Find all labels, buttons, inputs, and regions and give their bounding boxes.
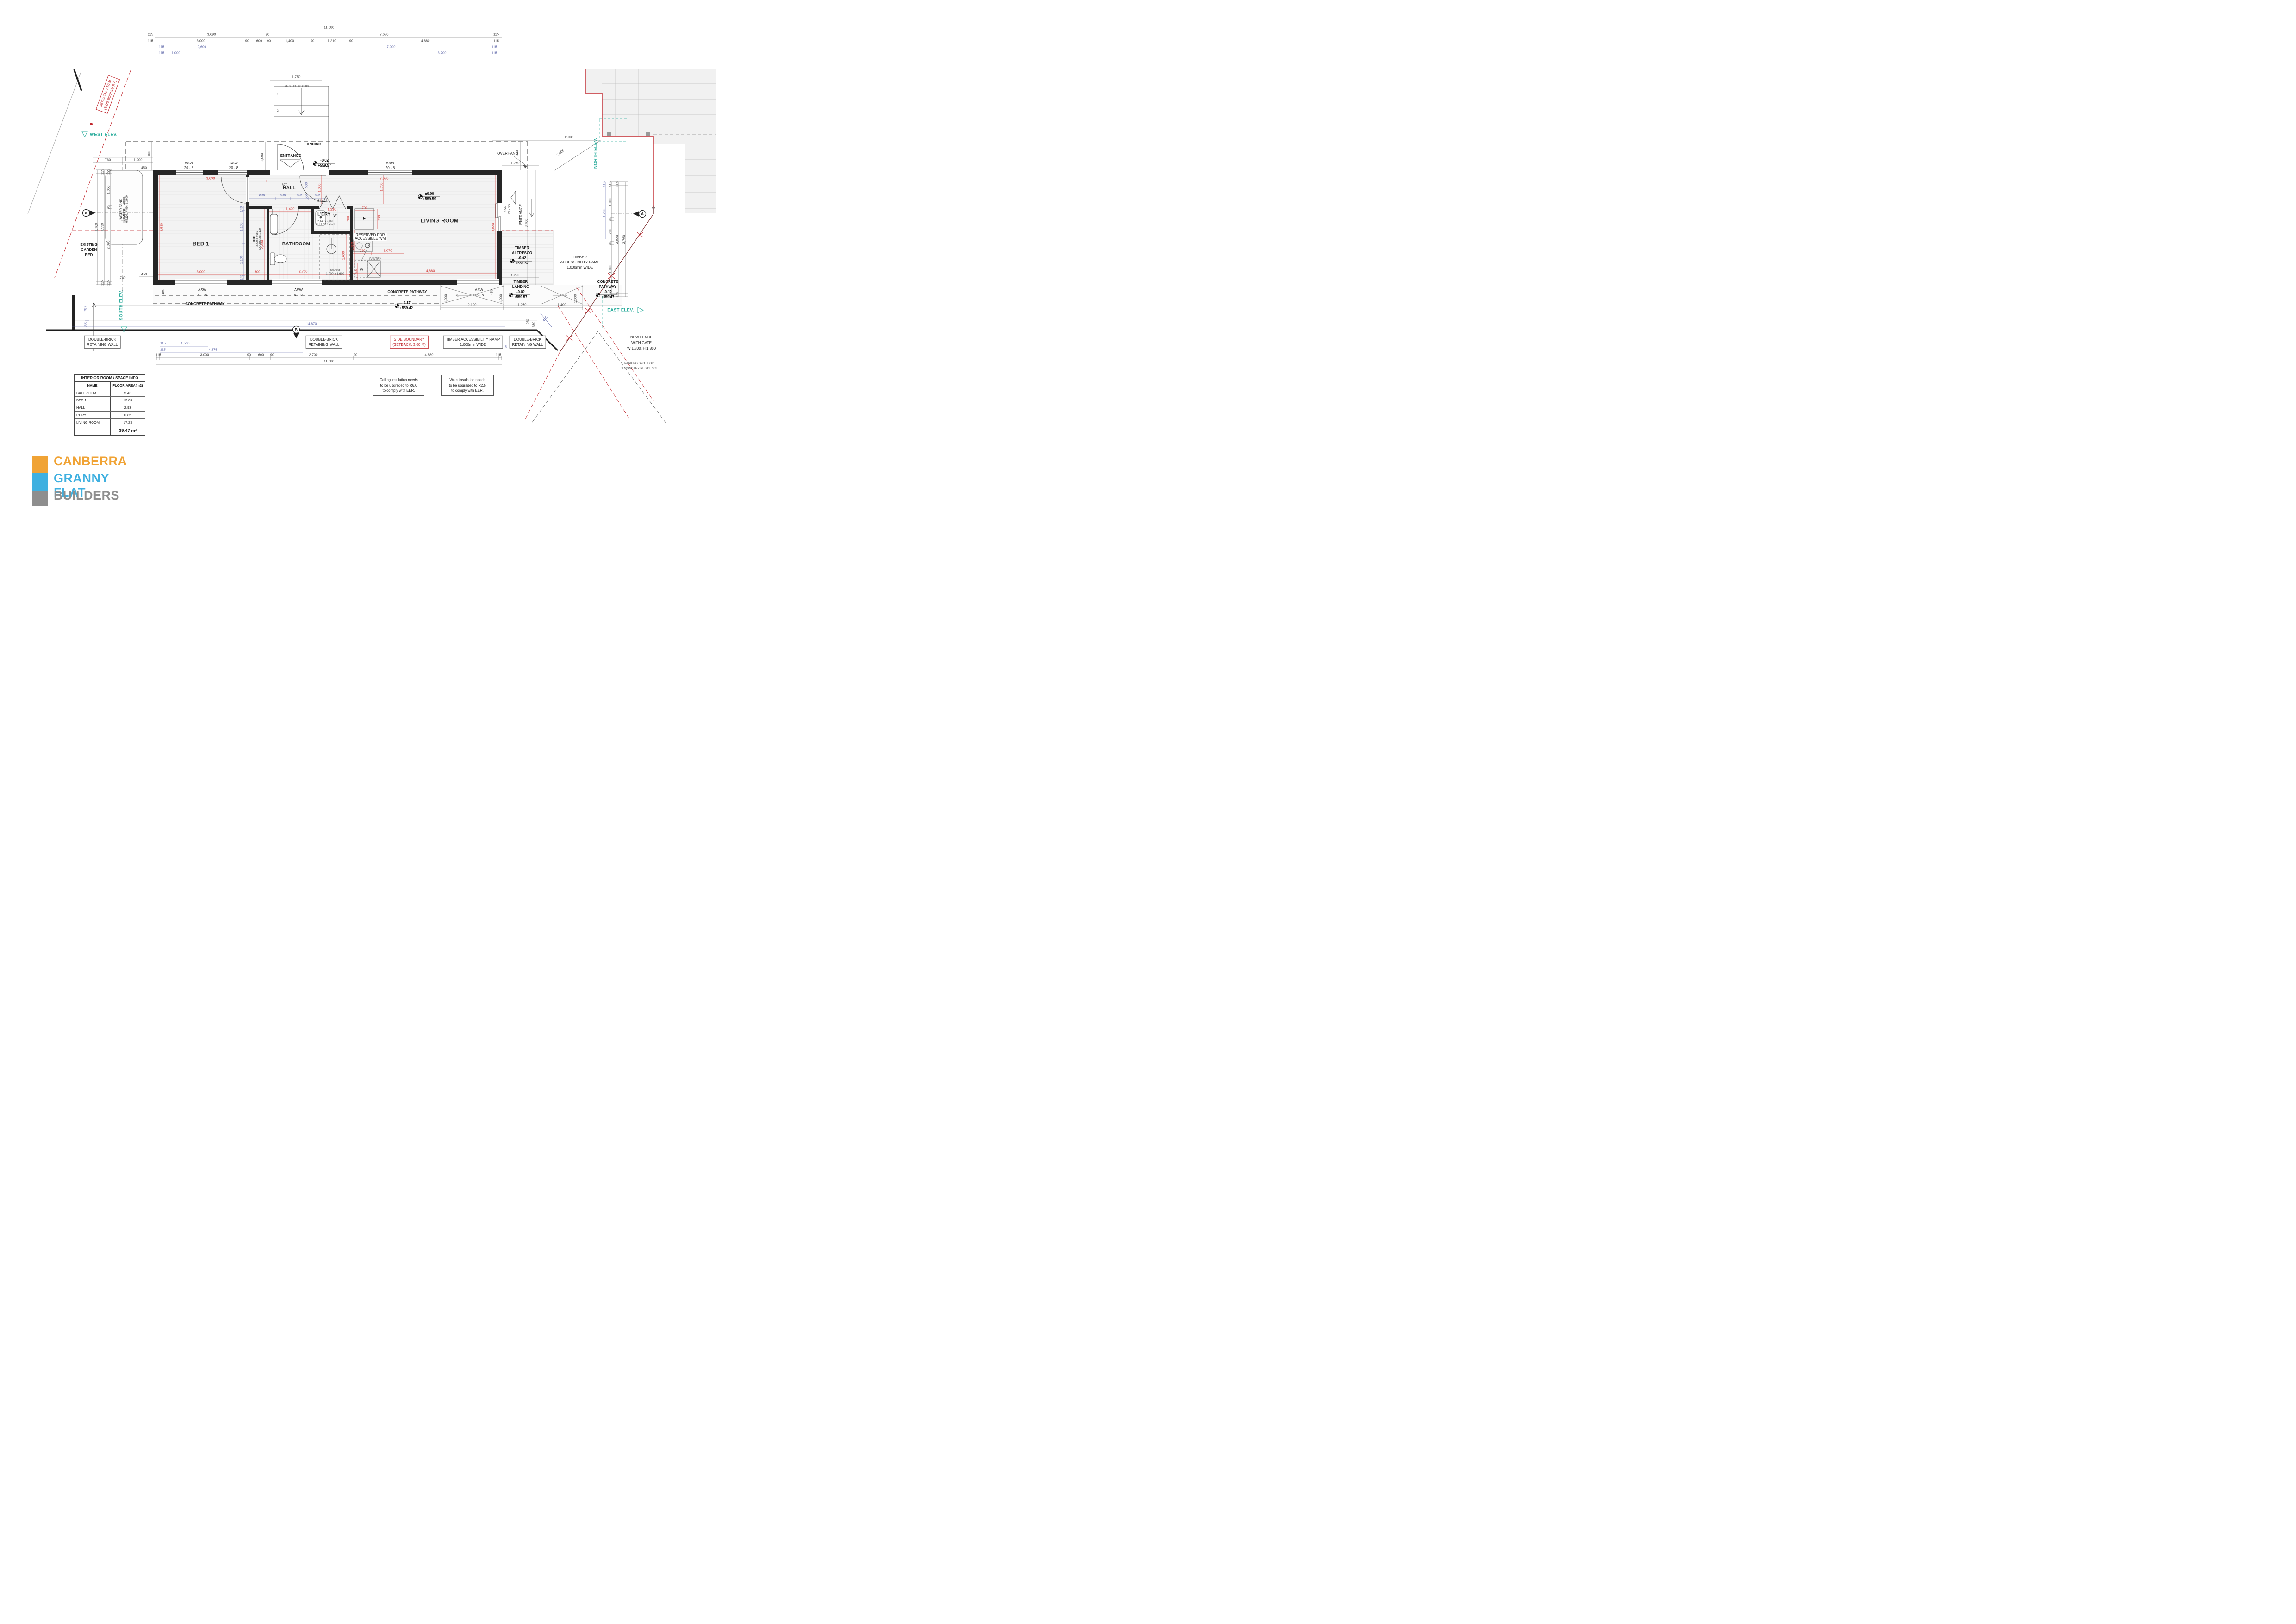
- dim-label: TIMBER: [515, 246, 529, 250]
- dim-label: 505: [280, 193, 286, 197]
- dim-label: 1,000mm WIDE: [567, 266, 593, 269]
- dim-label: 450: [141, 166, 147, 169]
- dim-label: 3,760: [524, 219, 528, 228]
- dim-label: 600: [354, 269, 358, 275]
- dim-label: W: [333, 214, 337, 218]
- dim-label: 7,670: [380, 32, 389, 36]
- dim-label: ALFRESCO: [512, 251, 532, 255]
- dim-label: NEW FENCE: [630, 336, 653, 339]
- dim-label: CONCRETE PATHWAY: [387, 290, 427, 294]
- dim-label: 3,530: [491, 223, 495, 232]
- dim-label: 1,760: [117, 276, 126, 280]
- dim-label: 6 - 18: [198, 294, 207, 297]
- timber-ramp-label: TIMBER ACCESSIBILITY RAMP1,000mm WIDE: [443, 336, 503, 349]
- dim-label: W:1,800, H:1,800: [627, 347, 656, 350]
- dim-label: 90: [311, 39, 314, 43]
- dim-label: 115: [159, 51, 164, 55]
- dim-label: NORTH ELEV.: [593, 138, 598, 169]
- dim-label: 605: [297, 193, 303, 197]
- logo-square-blue: [32, 473, 48, 491]
- dim-label: CONCRETE PATHWAY: [185, 302, 224, 306]
- dim-label: 700: [608, 229, 612, 235]
- dim-label: 90: [267, 39, 271, 43]
- dim-label: 115: [492, 51, 497, 55]
- dim-label: F: [363, 216, 366, 221]
- dim-label: 4,880: [425, 353, 434, 356]
- dim-label: 605: [315, 193, 321, 197]
- dim-label: 787: [83, 306, 87, 312]
- floor-plan-sheet: 11,6801153,690907,6701151153,00090600901…: [0, 0, 716, 506]
- dim-label: 115: [493, 39, 499, 43]
- dim-label: 1,050: [317, 184, 321, 193]
- dim-label: ASW: [198, 288, 206, 292]
- side-boundary-setback-label: SIDE BOUNDARY(SETBACK: 3.00 M): [390, 336, 429, 349]
- dim-label: 700: [346, 216, 350, 222]
- dim-label: 1,000: [134, 158, 143, 162]
- dim-label: AAW: [185, 162, 193, 165]
- col-header-name: NAME: [75, 382, 111, 389]
- dim-label: 3,760: [622, 235, 626, 244]
- dim-label: 90: [247, 353, 251, 356]
- dim-label: SECONDARY RESIDENCE: [621, 367, 658, 370]
- dim-label: B: [295, 328, 298, 332]
- dim-label: WITH GATE: [631, 341, 652, 345]
- dim-label: 1,250: [511, 273, 520, 277]
- dim-label: 600: [258, 353, 264, 356]
- dim-label: ±0.00: [425, 192, 434, 196]
- dim-label: 90: [245, 39, 249, 43]
- room-info-table: INTERIOR ROOM / SPACE INFO NAME FLOOR AR…: [74, 374, 145, 436]
- dim-label: 900: [147, 151, 151, 157]
- dim-label: BED 1: [193, 242, 209, 247]
- dim-label: 115: [492, 45, 497, 49]
- dim-label: 1,250: [511, 161, 520, 165]
- dim-label: 1,500: [181, 341, 190, 345]
- dim-label: 115: [493, 32, 499, 36]
- dim-label: 1,100: [239, 223, 243, 231]
- dim-label: 3,000: [197, 39, 205, 43]
- dim-label: 1,000: [172, 51, 180, 55]
- reserved-wm-label: RESERVED FOR ACCESSIBLE WM: [354, 233, 387, 241]
- dim-label: 115: [100, 169, 104, 175]
- dim-label: 1,600: [342, 251, 345, 260]
- table-title: INTERIOR ROOM / SPACE INFO: [75, 375, 145, 382]
- dim-label: 115: [602, 181, 606, 187]
- dim-label: 450: [141, 272, 147, 276]
- dim-label: 11,680: [324, 359, 334, 363]
- table-row: BED 1 13.03: [75, 397, 145, 404]
- dim-label: PATHWAY: [599, 285, 616, 289]
- dim-label: A: [85, 211, 87, 215]
- dim-label: 350: [83, 322, 87, 328]
- dim-label: 115: [156, 353, 161, 356]
- dim-label: 1: [277, 94, 279, 97]
- dim-label: 600: [256, 39, 262, 43]
- dim-label: 3,530: [160, 223, 163, 232]
- logo-text-canberra: CANBERRA: [54, 454, 127, 468]
- dim-label: 2R x H:150/D:300: [285, 85, 309, 88]
- dim-label: 3,000: [197, 270, 205, 274]
- dim-label: 2,032: [565, 135, 574, 139]
- dim-label: 700: [362, 206, 368, 210]
- table-total-row: 39.47 m²: [75, 426, 145, 435]
- dim-label: 2,100: [468, 303, 477, 306]
- dim-label: 1,210: [328, 39, 336, 43]
- dim-label: 4,880: [426, 269, 435, 273]
- dim-label: 1,000: [499, 294, 503, 303]
- dim-label: 550: [305, 194, 308, 200]
- dim-label: 115: [106, 280, 110, 286]
- dim-label: BATHROOM: [282, 242, 311, 247]
- dim-label: 2,700: [309, 353, 318, 356]
- dim-label: 2: [277, 110, 279, 113]
- retaining-wall-label-right: DOUBLE-BRICKRETAINING WALL: [510, 336, 546, 349]
- dim-label: ACCESSIBILITY RAMP: [560, 261, 600, 264]
- dim-label: 1,050: [106, 186, 110, 194]
- dim-label: 2,390: [106, 241, 110, 250]
- dim-label: TIMBER: [573, 256, 587, 259]
- col-header-area: FLOOR AREA(m2): [111, 382, 145, 389]
- total-floor-area: 39.47 m²: [111, 426, 145, 435]
- bir-label: BIR 2,200 x 2,060 DOORS: 2 x 1,100: [253, 228, 261, 250]
- dim-label: -0.12: [604, 290, 612, 294]
- dim-label: 115: [615, 181, 619, 187]
- dim-label: 7,670: [380, 176, 389, 180]
- dim-label: ASD: [504, 206, 507, 212]
- dim-label: 3,760: [94, 223, 98, 232]
- dim-label: HALL: [283, 186, 296, 191]
- dim-label: 1,100: [239, 256, 243, 264]
- dim-label: 1,070: [384, 249, 392, 252]
- dim-label: 1,400: [286, 39, 294, 43]
- dim-label: AAW: [386, 162, 394, 165]
- table-row: L'DRY 0.85: [75, 412, 145, 419]
- dim-label: -0.02: [516, 290, 525, 294]
- dim-label: 3,700: [438, 51, 447, 55]
- table-row: HALL 2.93: [75, 404, 145, 412]
- ceiling-insulation-note: Ceiling insulation needsto be upgraded t…: [373, 375, 424, 396]
- dim-label: 3,530: [100, 223, 104, 232]
- dim-label: PARKING SPOT FOR: [624, 362, 654, 366]
- dim-label: 1,750: [292, 75, 301, 79]
- dim-label: +559.42: [400, 306, 413, 310]
- dim-label: 1,050: [608, 198, 612, 206]
- dim-label: OVERHANG: [497, 152, 518, 156]
- dim-label: L'DRY: [317, 212, 330, 217]
- logo-square-gray: [32, 491, 48, 506]
- dim-label: -0.02: [320, 159, 329, 162]
- dim-label: 90: [270, 353, 274, 356]
- dim-label: CONCRETE: [597, 280, 618, 284]
- dim-label: 90: [266, 32, 269, 36]
- dim-label: 450: [490, 289, 493, 295]
- dim-label: 1,210: [328, 207, 336, 211]
- dim-label: 500: [305, 182, 308, 188]
- dim-label: 115: [160, 348, 166, 351]
- logo-text-builders: BUILDERS: [54, 488, 119, 503]
- dim-label: 1,000: [444, 294, 448, 303]
- dim-label: +559.57: [514, 295, 527, 299]
- dim-label: 140: [239, 275, 243, 281]
- dim-label: BED: [85, 253, 93, 257]
- table-row: BATHROOM 5.43: [75, 389, 145, 397]
- retaining-wall-label-mid: DOUBLE-BRICKRETAINING WALL: [306, 336, 342, 349]
- dim-label: 2,700: [299, 269, 308, 273]
- retaining-wall-label-left: DOUBLE-BRICKRETAINING WALL: [84, 336, 121, 349]
- dim-label: 20 - 8: [184, 166, 193, 170]
- dim-label: 1,400: [286, 207, 295, 211]
- dim-label: 1,600: [608, 265, 612, 274]
- dim-label: 350: [532, 322, 535, 328]
- dim-label: 20 - 8: [386, 166, 395, 170]
- dim-label: 115: [496, 353, 501, 356]
- dim-label: 450: [161, 289, 165, 295]
- dim-label: 6 - 12: [294, 294, 303, 297]
- dim-label: 115: [608, 181, 612, 187]
- dim-label: +559.57: [318, 164, 331, 168]
- dim-label: 20 - 8: [229, 166, 238, 170]
- dim-label: ENTRANCE: [280, 154, 301, 158]
- dim-label: WEST ELEV.: [90, 132, 118, 137]
- dim-label: 115: [100, 280, 104, 286]
- dim-label: 1,180: [350, 242, 354, 251]
- dim-label: PANTRY: [369, 258, 381, 261]
- dim-label: 115: [148, 39, 153, 43]
- dim-label: -0.17: [402, 301, 411, 305]
- dim-label: ENTRANCE: [519, 204, 523, 225]
- dim-label: +559.47: [601, 295, 614, 299]
- dim-label: 115: [106, 169, 110, 175]
- dim-label: AAW: [475, 288, 483, 292]
- dim-label: LIVING ROOM: [421, 219, 459, 224]
- dim-label: 1,000: [573, 294, 577, 303]
- dim-label: 3,530: [615, 235, 619, 244]
- dim-label: 90: [354, 353, 357, 356]
- dim-label: 3,000: [200, 353, 209, 356]
- dim-label: 250: [526, 319, 529, 325]
- dim-label: 115: [160, 341, 166, 345]
- dim-label: +559.57: [516, 262, 529, 265]
- dim-label: 760: [105, 158, 111, 162]
- dim-label: W: [360, 268, 363, 272]
- dim-label: 11,680: [324, 25, 334, 29]
- dim-label: LANDING: [512, 285, 529, 289]
- dim-label: 1,000 x 1,600: [326, 273, 344, 276]
- dim-label: 3,690: [206, 176, 215, 180]
- dim-label: 4,880: [421, 39, 430, 43]
- logo-square-orange: [32, 456, 48, 473]
- walls-insulation-note: Walls insulation needsto be upgraded to …: [441, 375, 494, 396]
- dim-label: 630: [360, 249, 366, 252]
- ldry-door-info: 2,140 x 2,060 DOORS: 2 x 570: [316, 221, 335, 226]
- dim-label: 4,675: [209, 348, 218, 351]
- dim-label: 115: [148, 32, 153, 36]
- dim-label: 1,400: [558, 303, 566, 306]
- dim-label: 2,600: [198, 45, 206, 49]
- dim-label: TIMBER: [514, 280, 528, 284]
- dim-label: AAW: [230, 162, 238, 165]
- dim-label: 7,000: [387, 45, 396, 49]
- dim-label: EXISTING: [80, 243, 97, 247]
- dim-label: 895: [259, 193, 265, 197]
- dim-label: 600: [255, 270, 261, 274]
- dim-label: 21 - 12: [317, 200, 328, 203]
- table-row: LIVING ROOM 17.23: [75, 419, 145, 426]
- dim-label: SOUTH ELEV.: [119, 290, 124, 320]
- dim-label: 90: [349, 39, 353, 43]
- dim-label: -0.02: [518, 256, 526, 260]
- dim-label: EAST ELEV.: [607, 308, 634, 312]
- dim-label: 1,250: [518, 303, 527, 306]
- dim-label: ASW: [294, 288, 303, 292]
- dim-label: 700: [377, 215, 381, 221]
- dim-label: 140: [239, 206, 243, 212]
- dim-label: 90: [608, 218, 612, 221]
- dim-label: +559.59: [423, 197, 436, 201]
- dim-label: GARDEN: [81, 248, 97, 252]
- dim-label: Shower: [330, 269, 340, 272]
- dim-label: LANDING: [305, 143, 321, 146]
- water-tank-label: WATER TANK SLIMLINE - 4000L H:2,200, W:8…: [119, 195, 129, 223]
- dim-label: 1,000: [260, 153, 264, 162]
- dim-label: 3,690: [207, 32, 216, 36]
- dim-label: A: [641, 212, 644, 216]
- dim-label: 15 - 8: [474, 294, 484, 297]
- dim-label: 115: [615, 292, 619, 298]
- dim-label: 14,870: [306, 322, 317, 325]
- dim-label: 90: [106, 206, 110, 209]
- dim-label: 115: [159, 45, 164, 49]
- dim-label: 90: [608, 242, 612, 245]
- dim-label: 1,050: [380, 183, 383, 192]
- dim-label: 21 - 26: [508, 204, 511, 214]
- dim-label: 1,765: [602, 209, 606, 218]
